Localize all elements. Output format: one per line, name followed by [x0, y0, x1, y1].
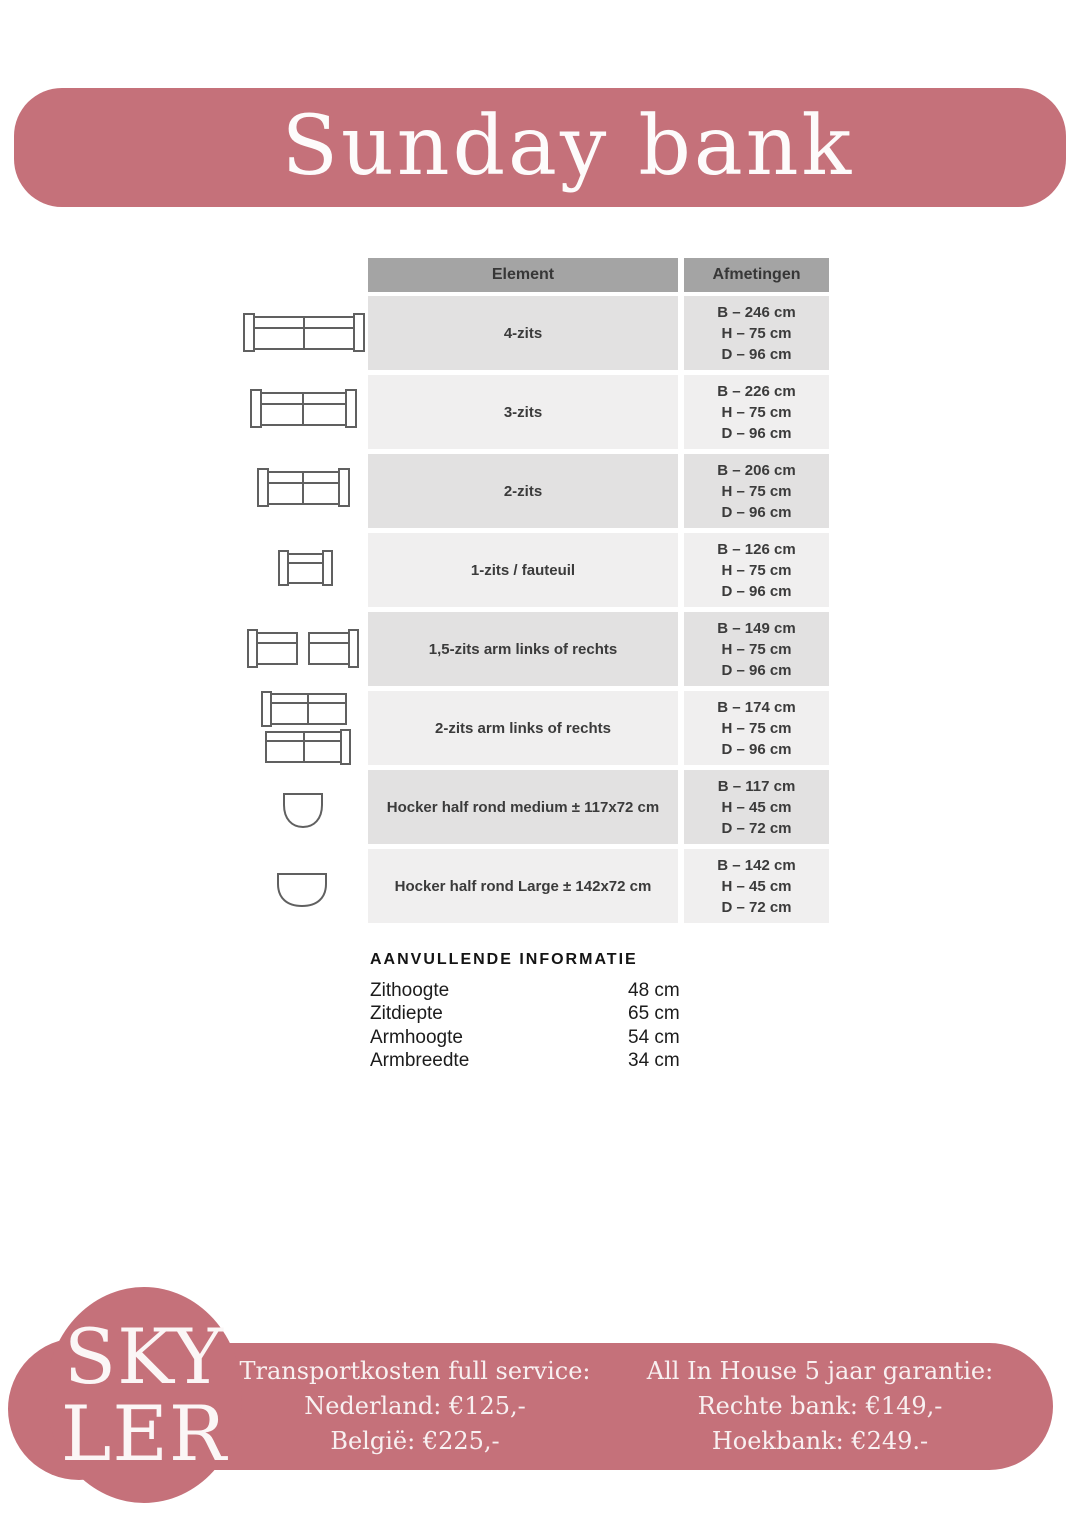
element-name: 1-zits / fauteuil: [368, 533, 678, 607]
dimension-line: H – 45 cm: [721, 876, 791, 897]
info-value: 65 cm: [628, 1003, 680, 1025]
transport-line: Nederland: €125,-: [225, 1389, 605, 1424]
dimension-line: D – 96 cm: [721, 502, 791, 523]
warranty-line: Rechte bank: €149,-: [630, 1389, 1010, 1424]
logo-text-line: LER: [61, 1395, 227, 1472]
dimension-line: B – 117 cm: [718, 776, 796, 797]
dimension-line: D – 96 cm: [721, 423, 791, 444]
table-row: 4-zits B – 246 cm H – 75 cm D – 96 cm: [368, 296, 829, 370]
column-header-afmetingen: Afmetingen: [684, 258, 829, 292]
transport-costs: Transportkosten full service: Nederland:…: [225, 1354, 605, 1459]
skyler-logo: SKY LER: [46, 1287, 242, 1503]
dimension-line: D – 96 cm: [721, 739, 791, 760]
dimension-line: H – 75 cm: [721, 560, 791, 581]
warranty-line: Hoekbank: €249.-: [630, 1424, 1010, 1459]
element-name: Hocker half rond Large ± 142x72 cm: [368, 849, 678, 923]
table-row: 2-zits arm links of rechts B – 174 cm H …: [368, 691, 829, 765]
sofa-4-zits-icon: [243, 312, 365, 353]
info-label: Zitdiepte: [370, 1003, 443, 1024]
info-value: 34 cm: [628, 1050, 680, 1072]
product-sheet: Sunday bank: [0, 0, 1080, 1528]
transport-heading: Transportkosten full service:: [225, 1354, 605, 1389]
element-name: 4-zits: [368, 296, 678, 370]
table-row: 1,5-zits arm links of rechts B – 149 cm …: [368, 612, 829, 686]
seat-arm-right-icon: [308, 629, 359, 668]
dimensions-cell: B – 246 cm H – 75 cm D – 96 cm: [684, 296, 829, 370]
info-row: Armbreedte 34 cm: [370, 1050, 700, 1073]
warranty-info: All In House 5 jaar garantie: Rechte ban…: [630, 1354, 1010, 1459]
dimension-line: B – 126 cm: [717, 539, 795, 560]
dimension-line: B – 149 cm: [717, 618, 795, 639]
info-row: Zitdiepte 65 cm: [370, 1003, 700, 1026]
element-name: 2-zits arm links of rechts: [368, 691, 678, 765]
table-row: 3-zits B – 226 cm H – 75 cm D – 96 cm: [368, 375, 829, 449]
dimension-line: H – 75 cm: [721, 323, 791, 344]
warranty-heading: All In House 5 jaar garantie:: [630, 1354, 1010, 1389]
dimension-line: D – 96 cm: [721, 344, 791, 365]
logo-text-line: SKY: [64, 1318, 224, 1395]
dimensions-cell: B – 174 cm H – 75 cm D – 96 cm: [684, 691, 829, 765]
dimension-line: H – 75 cm: [721, 402, 791, 423]
table-row: Hocker half rond medium ± 117x72 cm B – …: [368, 770, 829, 844]
sofa-2-zits-icon: [257, 467, 350, 508]
dimension-line: D – 72 cm: [721, 897, 791, 918]
dimensions-cell: B – 149 cm H – 75 cm D – 96 cm: [684, 612, 829, 686]
info-value: 48 cm: [628, 980, 680, 1002]
dimension-line: B – 206 cm: [717, 460, 795, 481]
sofa-2-zits-arm-left-icon: [261, 691, 347, 727]
table-row: 2-zits B – 206 cm H – 75 cm D – 96 cm: [368, 454, 829, 528]
page-title: Sunday bank: [14, 88, 1066, 207]
table-row: 1-zits / fauteuil B – 126 cm H – 75 cm D…: [368, 533, 829, 607]
dimensions-cell: B – 117 cm H – 45 cm D – 72 cm: [684, 770, 829, 844]
element-name: 3-zits: [368, 375, 678, 449]
dimension-line: H – 75 cm: [721, 718, 791, 739]
dimensions-cell: B – 206 cm H – 75 cm D – 96 cm: [684, 454, 829, 528]
info-label: Armbreedte: [370, 1050, 469, 1071]
fauteuil-icon: [278, 549, 333, 587]
info-row: Armhoogte 54 cm: [370, 1027, 700, 1050]
additional-info-list: Zithoogte 48 cm Zitdiepte 65 cm Armhoogt…: [370, 980, 700, 1073]
element-name: 2-zits: [368, 454, 678, 528]
table-header-row: Element Afmetingen: [368, 258, 829, 292]
dimension-line: B – 142 cm: [717, 855, 795, 876]
element-name: 1,5-zits arm links of rechts: [368, 612, 678, 686]
dimensions-cell: B – 126 cm H – 75 cm D – 96 cm: [684, 533, 829, 607]
additional-info-heading: AANVULLENDE INFORMATIE: [370, 951, 638, 969]
info-value: 54 cm: [628, 1027, 680, 1049]
info-label: Zithoogte: [370, 980, 449, 1001]
title-banner: Sunday bank: [14, 88, 1066, 207]
hocker-medium-icon: [282, 792, 324, 829]
dimension-line: D – 96 cm: [721, 581, 791, 602]
dimension-line: D – 72 cm: [721, 818, 791, 839]
table-row: Hocker half rond Large ± 142x72 cm B – 1…: [368, 849, 829, 923]
info-row: Zithoogte 48 cm: [370, 980, 700, 1003]
element-name: Hocker half rond medium ± 117x72 cm: [368, 770, 678, 844]
dimensions-cell: B – 226 cm H – 75 cm D – 96 cm: [684, 375, 829, 449]
dimensions-cell: B – 142 cm H – 45 cm D – 72 cm: [684, 849, 829, 923]
seat-arm-left-icon: [247, 629, 298, 668]
dimension-line: B – 174 cm: [717, 697, 795, 718]
dimension-line: H – 75 cm: [721, 481, 791, 502]
dimension-line: B – 226 cm: [717, 381, 795, 402]
table-body: 4-zits B – 246 cm H – 75 cm D – 96 cm 3-…: [368, 296, 829, 923]
info-label: Armhoogte: [370, 1027, 463, 1048]
dimension-line: D – 96 cm: [721, 660, 791, 681]
sofa-2-zits-arm-right-icon: [265, 729, 351, 765]
column-header-element: Element: [368, 258, 678, 292]
dimension-line: H – 75 cm: [721, 639, 791, 660]
sofa-3-zits-icon: [250, 388, 357, 429]
spec-table: Element Afmetingen 4-zits B – 246 cm H –…: [368, 258, 829, 928]
hocker-large-icon: [276, 872, 328, 908]
dimension-line: B – 246 cm: [717, 302, 795, 323]
dimension-line: H – 45 cm: [721, 797, 791, 818]
transport-line: België: €225,-: [225, 1424, 605, 1459]
